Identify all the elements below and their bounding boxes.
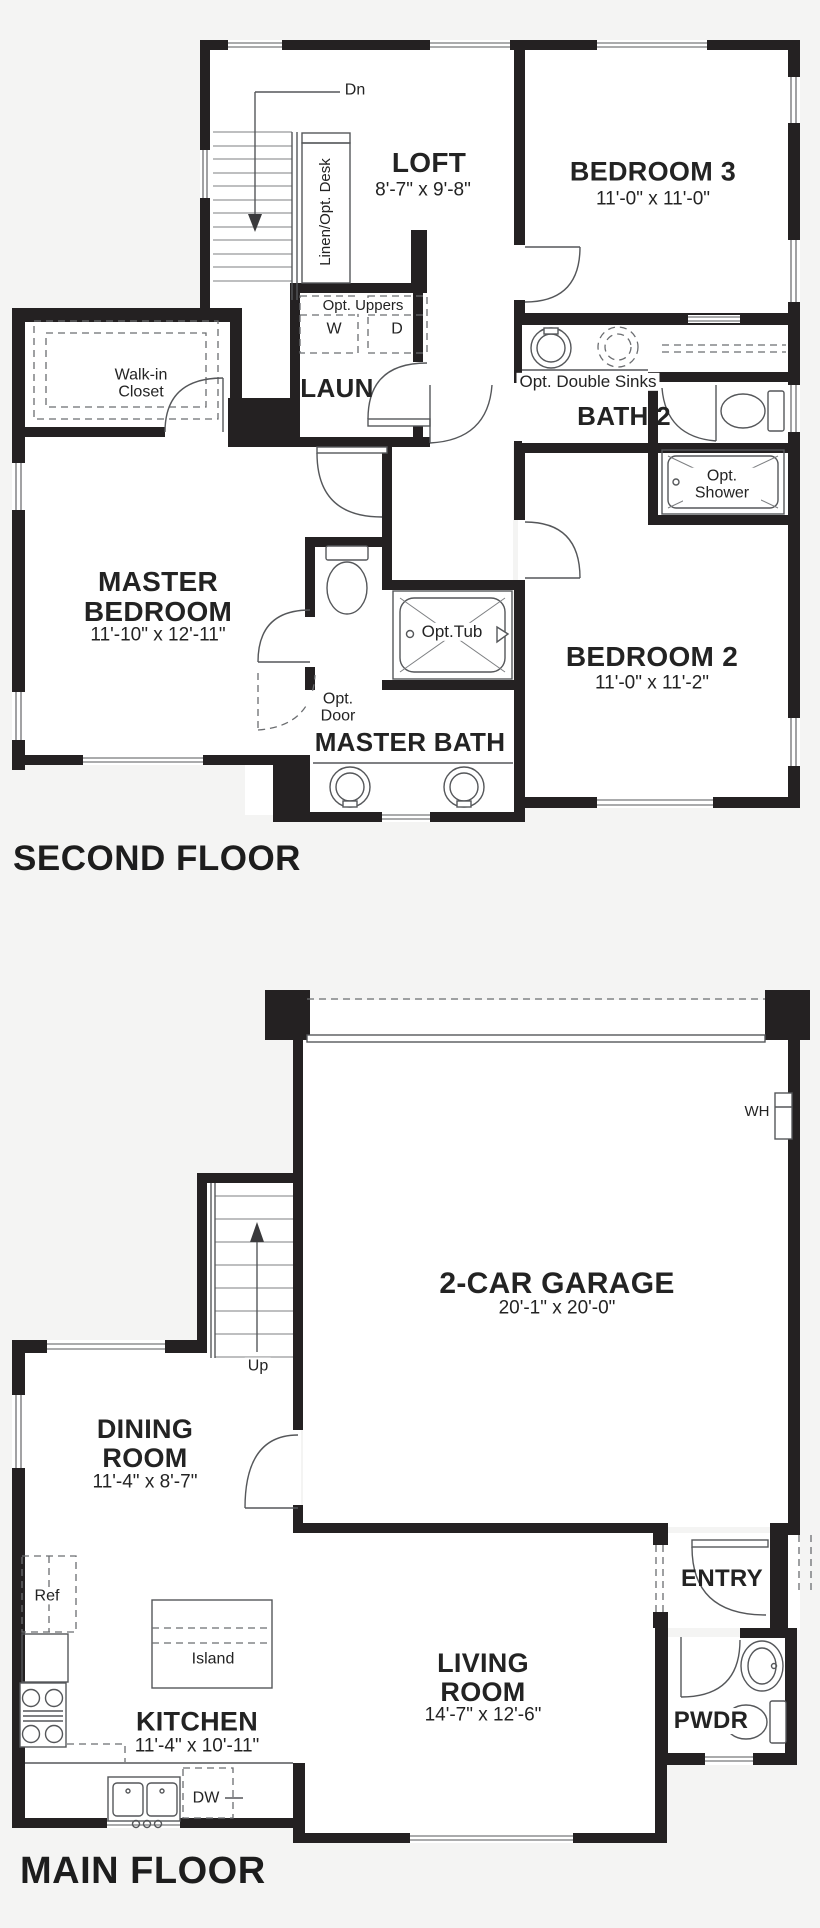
kitchen-dims: 11'-4" x 10'-11" [135, 1737, 260, 1758]
walk-in-closet-name: Walk-in Closet [94, 367, 189, 402]
dryer-label: D [391, 320, 403, 337]
opt-double-sinks-label: Opt. Double Sinks [516, 373, 659, 391]
bedroom3-dims: 11'-0" x 11'-0" [596, 190, 710, 211]
dining-room-name: DINING ROOM [78, 1415, 213, 1473]
laundry-name: LAUN [300, 374, 373, 402]
second-floor-title: SECOND FLOOR [13, 839, 301, 879]
opt-door-label: Opt. Door [307, 691, 369, 726]
garage-dims: 20'-1" x 20'-0" [499, 1299, 616, 1320]
master-bath-name: MASTER BATH [315, 728, 506, 756]
kitchen-sink-icon [108, 1777, 180, 1828]
entry-name: ENTRY [681, 1566, 763, 1592]
water-heater-icon [775, 1093, 792, 1139]
living-room-dims: 14'-7" x 12'-6" [425, 1706, 542, 1727]
water-heater-label: WH [745, 1104, 770, 1120]
kitchen-name: KITCHEN [136, 1707, 258, 1736]
porch-lines-dashed [799, 1535, 811, 1592]
powder-sink-icon [741, 1641, 783, 1691]
floor-plan-page: Dn Linen/Opt. Desk LOFT 8'-7" x 9'-8" BE… [0, 0, 820, 1928]
dishwasher-label: DW [190, 1789, 223, 1806]
bedroom3-name: BEDROOM 3 [570, 157, 736, 186]
bath2-name: BATH 2 [577, 402, 671, 430]
refrigerator-label: Ref [32, 1587, 63, 1604]
island-label: Island [192, 1650, 235, 1667]
garage-name: 2-CAR GARAGE [439, 1268, 674, 1300]
stove-icon [20, 1683, 66, 1747]
island-icon [152, 1600, 272, 1688]
loft-name: LOFT [392, 148, 466, 178]
bedroom2-dims: 11'-0" x 11'-2" [595, 674, 709, 695]
opt-tub-label: Opt.Tub [419, 623, 486, 641]
main-floor-title: MAIN FLOOR [20, 1850, 266, 1893]
washer-label: W [326, 320, 341, 337]
bath2-toilet-icon [721, 391, 784, 431]
master-bedroom-name: MASTER BEDROOM [63, 567, 253, 627]
living-room-name: LIVING ROOM [418, 1649, 548, 1707]
bedroom2-name: BEDROOM 2 [566, 642, 738, 672]
master-bedroom-dims: 11'-10" x 12'-11" [90, 626, 225, 647]
stairs-down-label: Dn [345, 81, 365, 98]
floor-plan-drawing [0, 0, 820, 1928]
opt-shower-label: Opt. Shower [683, 468, 761, 503]
opt-uppers-label: Opt. Uppers [320, 298, 407, 314]
loft-dims: 8'-7" x 9'-8" [375, 181, 471, 202]
stairs-up-label: Up [245, 1357, 271, 1374]
linen-desk-label: Linen/Opt. Desk [318, 158, 334, 266]
powder-name: PWDR [671, 1708, 752, 1734]
dining-room-dims: 11'-4" x 8'-7" [93, 1473, 198, 1494]
master-toilet-icon [326, 546, 368, 614]
